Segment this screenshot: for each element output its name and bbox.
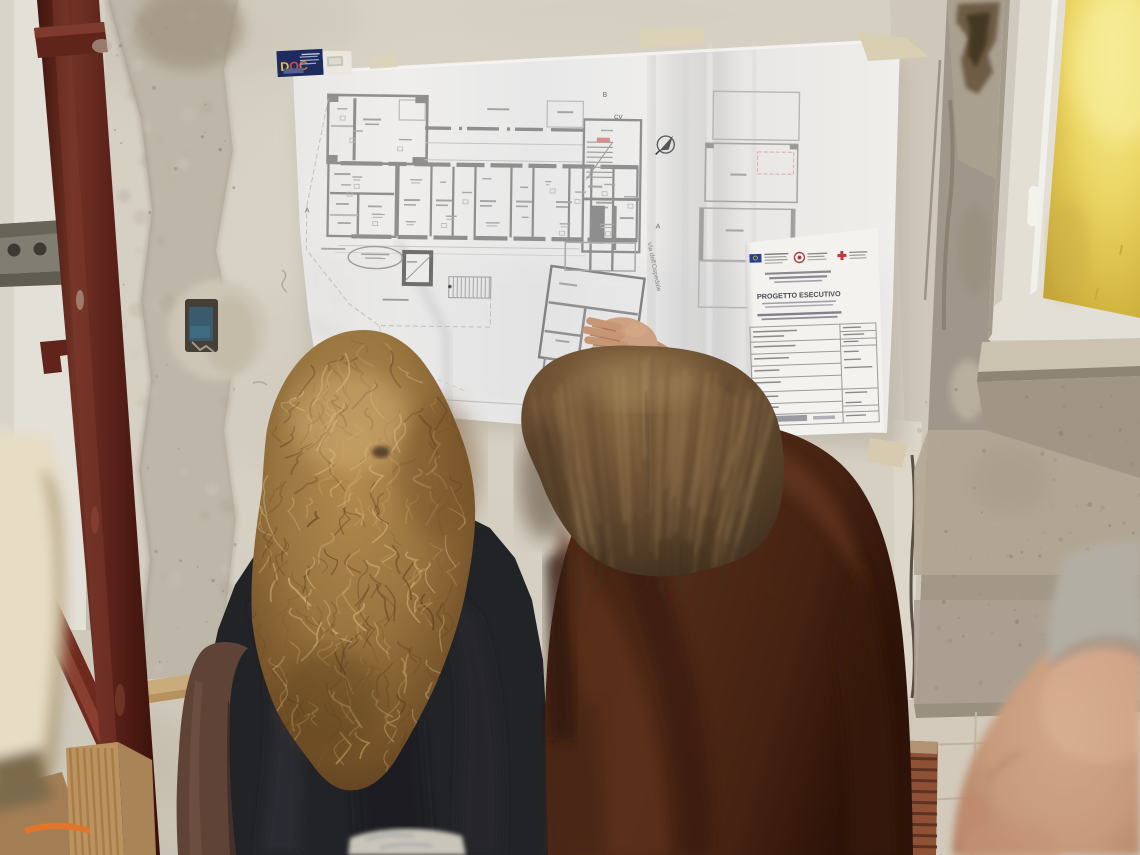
svg-text:A: A [656,223,661,230]
svg-text:CV: CV [614,115,622,121]
svg-text:B: B [602,92,607,99]
svg-text:A: A [305,208,310,215]
